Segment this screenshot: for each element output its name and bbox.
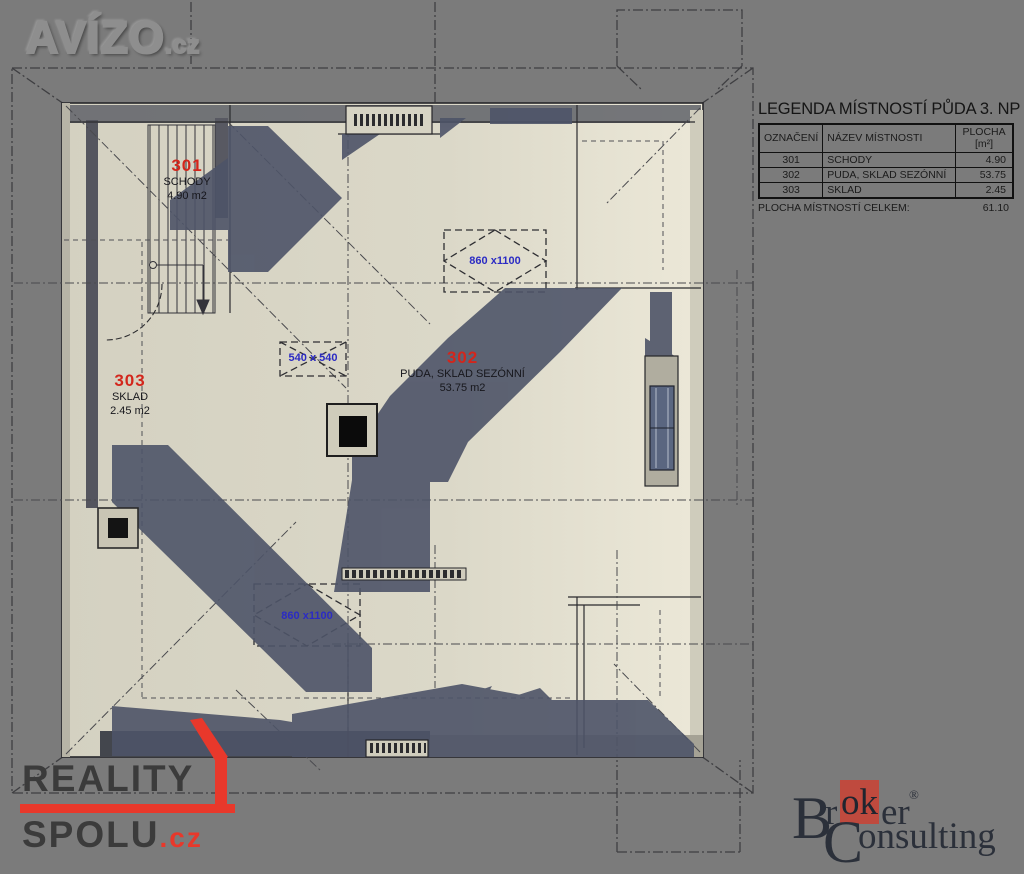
room-name: SCHODY <box>130 176 244 190</box>
roof-window-size-label: 540 x 540 <box>268 352 358 364</box>
broker-consulting-logo: B r ok er ® C onsulting <box>790 778 1022 874</box>
legend-col-area-unit: PLOCHA <box>960 126 1008 138</box>
room-name: PUDA, SKLAD SEZÓNNÍ <box>385 368 540 382</box>
room-area: 4.90 m2 <box>130 190 244 204</box>
legend-row: 302 PUDA, SKLAD SEZÓNNÍ 53.75 <box>759 167 1013 182</box>
legend-cell-area: 4.90 <box>956 152 1013 167</box>
legend-cell-name: PUDA, SKLAD SEZÓNNÍ <box>823 167 956 182</box>
legend-total-row: PLOCHA MÍSTNOSTÍ CELKEM: 61.10 <box>758 202 1014 214</box>
legend-total-label: PLOCHA MÍSTNOSTÍ CELKEM: <box>758 202 910 214</box>
reality-logo-line1: REALITY <box>22 760 194 797</box>
legend: LEGENDA MÍSTNOSTÍ PŮDA 3. NP OZNAČENÍ NÁ… <box>758 100 1014 214</box>
legend-cell-id: 301 <box>759 152 823 167</box>
room-label-302: 302 PUDA, SKLAD SEZÓNNÍ 53.75 m2 <box>385 347 540 396</box>
legend-row: 303 SKLAD 2.45 <box>759 182 1013 198</box>
room-label-301: 301 SCHODY 4.90 m2 <box>130 155 244 204</box>
roof-window-size-label: 860 x1100 <box>262 610 352 622</box>
legend-header-row: OZNAČENÍ NÁZEV MÍSTNOSTI PLOCHA [m²] <box>759 124 1013 152</box>
legend-row: 301 SCHODY 4.90 <box>759 152 1013 167</box>
reality-tld: .cz <box>159 822 202 853</box>
registered-mark-icon: ® <box>909 788 919 801</box>
legend-table: OZNAČENÍ NÁZEV MÍSTNOSTI PLOCHA [m²] 301… <box>758 123 1014 199</box>
legend-total-value: 61.10 <box>958 202 1014 214</box>
reality-spolu-text: SPOLU <box>22 814 159 855</box>
reality-logo-line2: SPOLU.cz <box>22 816 203 853</box>
room-number: 301 <box>130 155 244 176</box>
room-label-303: 303 SKLAD 2.45 m2 <box>73 370 187 419</box>
legend-cell-area: 53.75 <box>956 167 1013 182</box>
avizo-brand: AVÍZO <box>26 12 165 63</box>
stair-arrow-start <box>150 262 157 269</box>
floor-plan-image: 301 SCHODY 4.90 m2 302 PUDA, SKLAD SEZÓN… <box>0 0 1024 874</box>
legend-cell-name: SKLAD <box>823 182 956 198</box>
room-number: 302 <box>385 347 540 368</box>
legend-col-area: PLOCHA [m²] <box>956 124 1013 152</box>
legend-col-name: NÁZEV MÍSTNOSTI <box>823 124 956 152</box>
room-name: SKLAD <box>73 391 187 405</box>
legend-cell-area: 2.45 <box>956 182 1013 198</box>
room-area: 2.45 m2 <box>73 405 187 419</box>
legend-cell-id: 302 <box>759 167 823 182</box>
legend-title: LEGENDA MÍSTNOSTÍ PŮDA 3. NP <box>758 100 1014 119</box>
legend-col-area-unit: [m²] <box>960 138 1008 150</box>
room-area: 53.75 m2 <box>385 382 540 396</box>
avizo-logo: AVÍZO.cz <box>26 12 200 64</box>
legend-cell-name: SCHODY <box>823 152 956 167</box>
roof-window-size-label: 860 x1100 <box>450 255 540 267</box>
broker-text: onsulting <box>858 818 996 855</box>
window-top <box>346 106 432 134</box>
legend-col-designation: OZNAČENÍ <box>759 124 823 152</box>
legend-cell-id: 303 <box>759 182 823 198</box>
avizo-tld: .cz <box>165 32 200 59</box>
room-number: 303 <box>73 370 187 391</box>
